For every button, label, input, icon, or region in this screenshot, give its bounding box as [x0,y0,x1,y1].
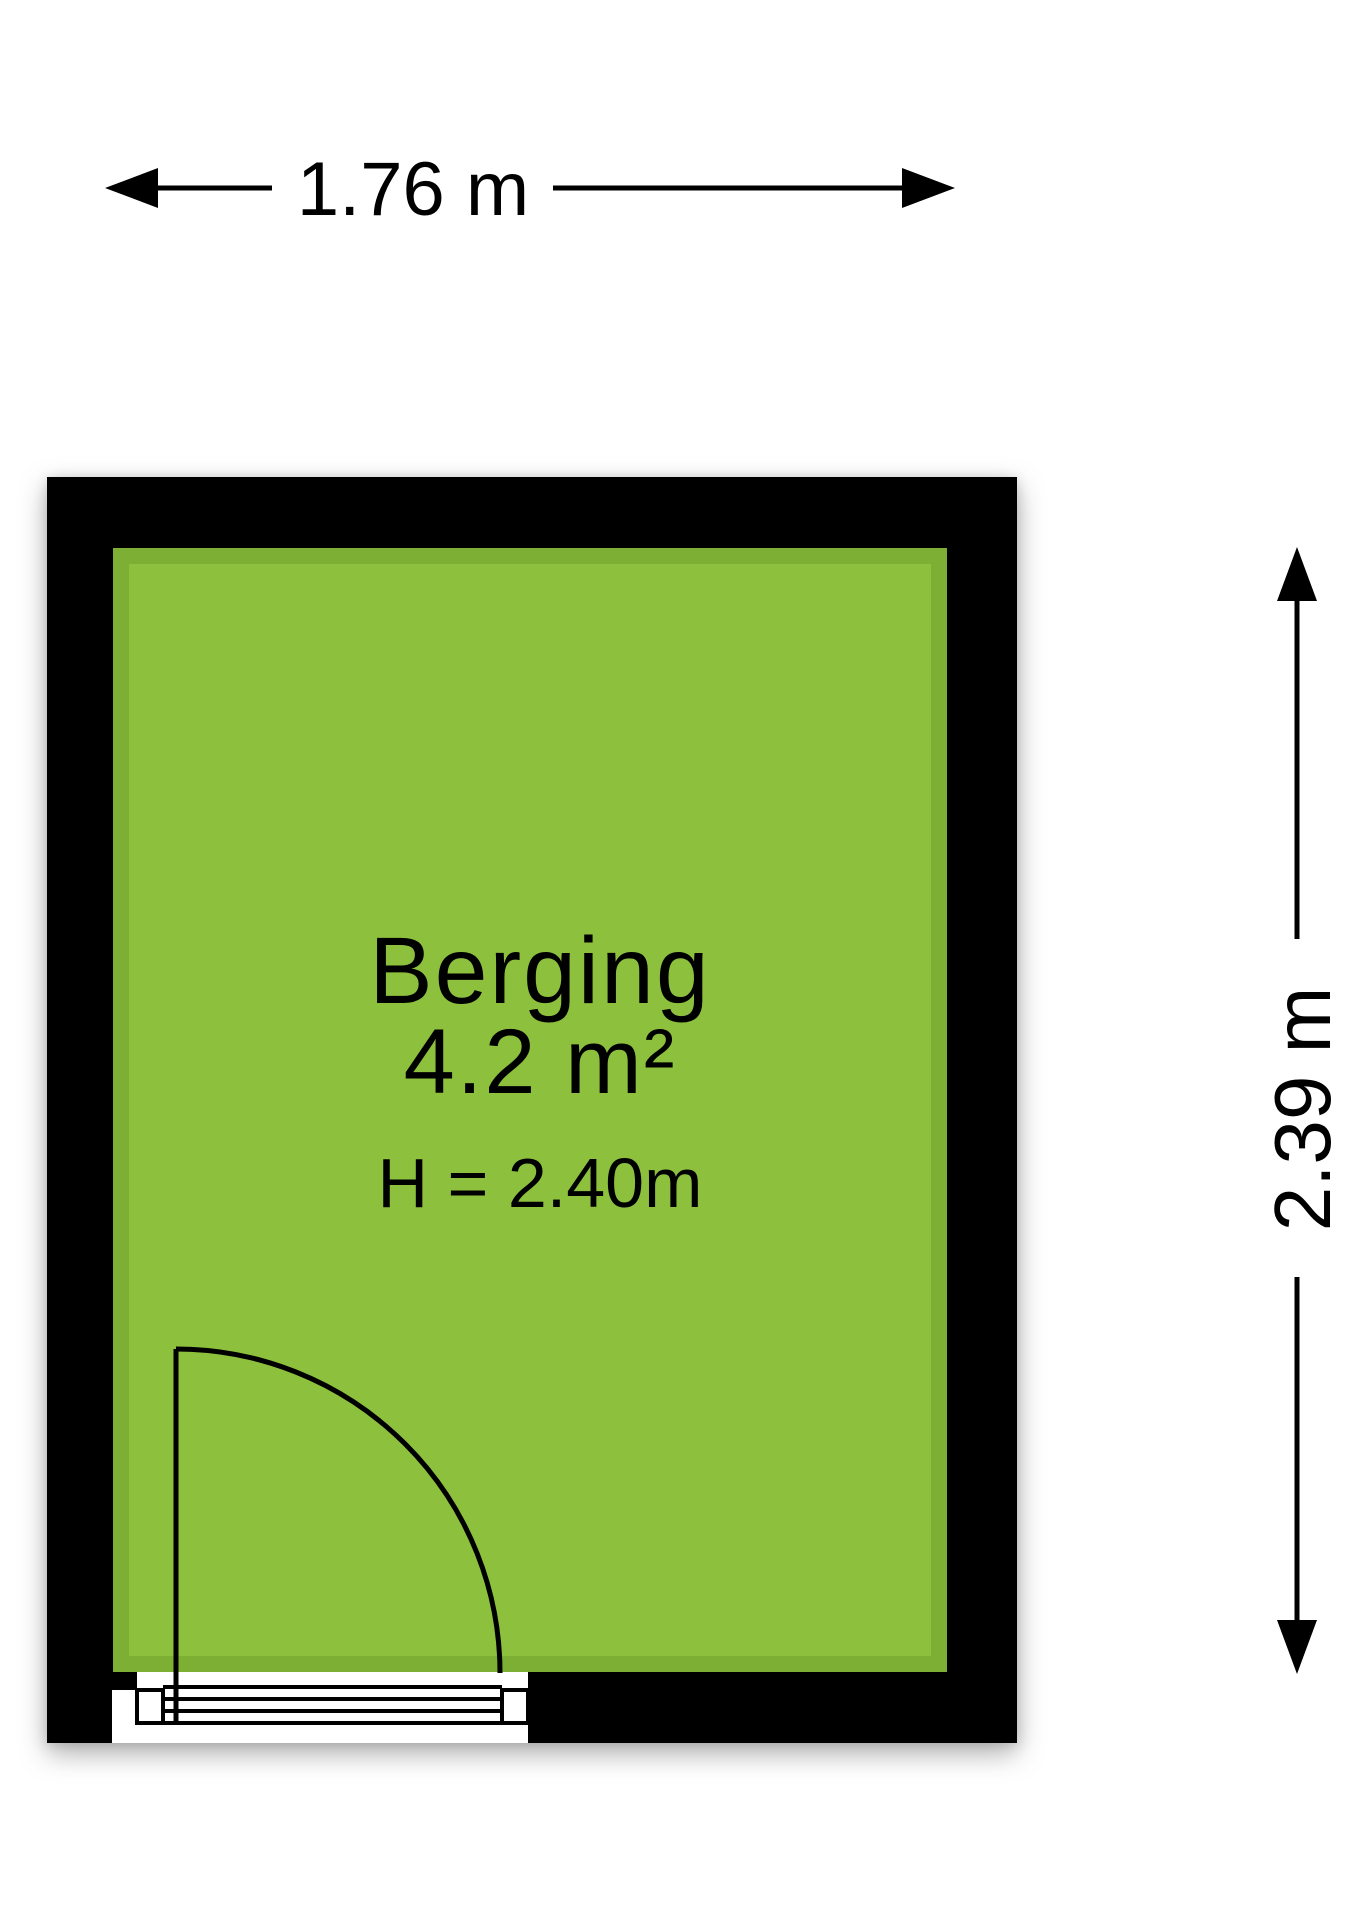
dimension-arrow-left-icon [105,168,158,208]
room-name-label: Berging [369,918,710,1024]
width-dimension: 1.76 m [105,147,955,232]
door-opening [137,1672,528,1743]
height-dimension: 2.39 m [1258,547,1347,1674]
door-jamb-left [137,1690,163,1723]
width-dimension-label: 1.76 m [297,147,529,232]
door-jamb-right [502,1690,528,1723]
height-dimension-label: 2.39 m [1258,987,1347,1232]
dimension-arrow-up-icon [1277,547,1317,601]
room-berging: Berging 4.2 m² H = 2.40m [47,477,1017,1743]
floorplan-canvas: 1.76 m 2.39 m [0,0,1358,1920]
room-height-label: H = 2.40m [378,1144,703,1222]
floorplan-page: 1.76 m 2.39 m [0,0,1358,1920]
door-opening-left-notch [112,1690,137,1743]
room-area-label: 4.2 m² [404,1011,677,1113]
dimension-arrow-down-icon [1277,1620,1317,1674]
dimension-arrow-right-icon [902,168,955,208]
